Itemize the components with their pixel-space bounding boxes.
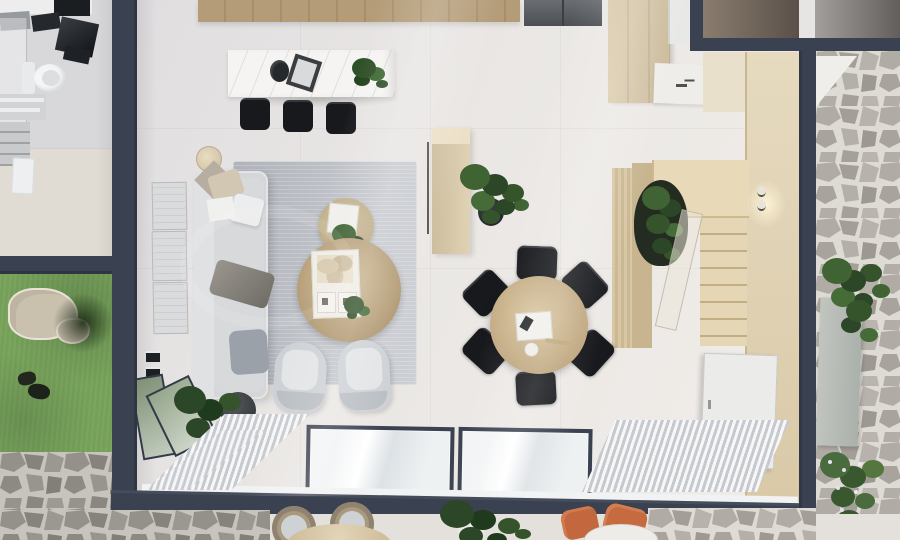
wall-bathroom-divider (0, 256, 112, 274)
armchair-seat (345, 347, 383, 391)
glass-door-panel (305, 425, 454, 498)
wall-top-right-horizontal (690, 38, 900, 51)
flower-bed (820, 452, 850, 478)
wall-sconce (146, 351, 160, 362)
shrub (846, 300, 872, 322)
door-handle (708, 400, 711, 409)
tall-cabinet (432, 128, 470, 254)
dining-cup (524, 342, 539, 357)
large-plant (460, 164, 490, 190)
wall-left (112, 0, 137, 533)
wall-lamp-glow (746, 180, 786, 228)
stair-plant (642, 186, 670, 210)
tray-pastries (317, 255, 353, 283)
tile-seam (430, 0, 431, 496)
island-plant (352, 58, 376, 78)
wall-art-frame (153, 282, 189, 335)
kitchen-counter (198, 0, 520, 22)
bathroom-fixture-black (54, 0, 90, 16)
tile-seam (560, 0, 561, 496)
terrace-stones-right (648, 508, 816, 540)
bar-stool (240, 98, 270, 130)
floorplan-render (0, 0, 900, 540)
garden-bush (52, 294, 114, 352)
toilet-seat (42, 70, 60, 86)
stair-stringer (612, 168, 632, 348)
towel-bar (0, 108, 40, 112)
curtain-right (582, 420, 790, 492)
plant-pot (478, 198, 504, 226)
bath-right-shade (96, 0, 113, 258)
wall-lamp-bulb (757, 186, 766, 197)
rug-plant (344, 296, 364, 314)
wall-art-frame (152, 231, 188, 282)
shrub (822, 258, 852, 284)
wall-top-right-stub (690, 0, 703, 45)
bar-stool (326, 102, 356, 134)
sofa-paper (207, 196, 236, 221)
bar-stool (283, 100, 313, 132)
refrigerator-divider (562, 0, 564, 26)
wall-lamp-bulb (757, 200, 766, 211)
faucet (676, 84, 687, 87)
flower-dots (828, 460, 832, 464)
corner-plant (174, 386, 206, 414)
cabinet-pole (427, 142, 429, 234)
towel-bar (0, 98, 44, 102)
wall-right (799, 38, 816, 538)
sofa-seat-gray (229, 329, 270, 376)
armchair-seat (281, 349, 320, 391)
adjacent-room-gray (815, 0, 900, 40)
wall-art-frame (152, 182, 188, 231)
terrace-plant (440, 500, 474, 528)
stair-flight (700, 218, 747, 346)
bath-cabinet (11, 157, 35, 194)
tall-cabinet-top (432, 128, 470, 144)
dining-chair (515, 370, 557, 406)
terrace-stones-left (0, 510, 270, 540)
cup-contents (322, 298, 328, 305)
adjacent-room-taupe (703, 0, 799, 40)
